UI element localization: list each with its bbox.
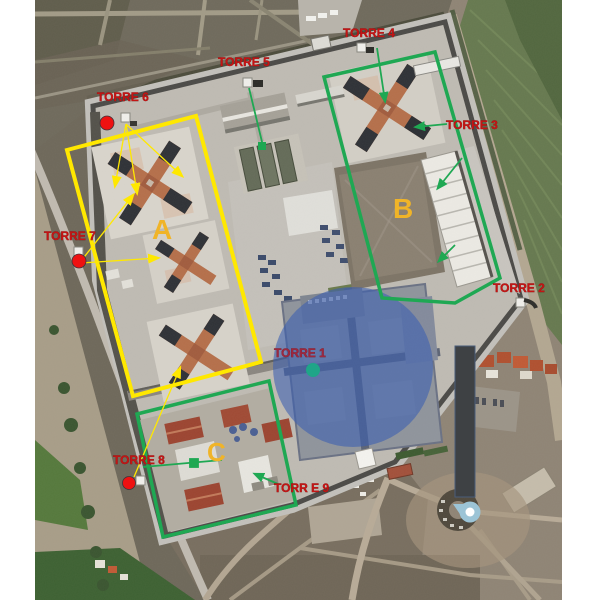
svg-text:TORRE 8: TORRE 8 (113, 453, 165, 467)
svg-text:TORRE 5: TORRE 5 (218, 55, 270, 69)
svg-text:TORRE 3: TORRE 3 (446, 118, 498, 132)
svg-text:C: C (207, 437, 226, 467)
svg-text:TORRE 2: TORRE 2 (493, 281, 545, 295)
svg-text:B: B (393, 193, 413, 224)
svg-text:TORRE 1: TORRE 1 (274, 346, 326, 360)
svg-text:TORRE 7: TORRE 7 (44, 229, 96, 243)
svg-text:TORR E 9: TORR E 9 (274, 481, 329, 495)
svg-text:TORRE 6: TORRE 6 (97, 90, 149, 104)
svg-text:A: A (152, 214, 172, 245)
svg-text:TORRE 4: TORRE 4 (343, 26, 395, 40)
